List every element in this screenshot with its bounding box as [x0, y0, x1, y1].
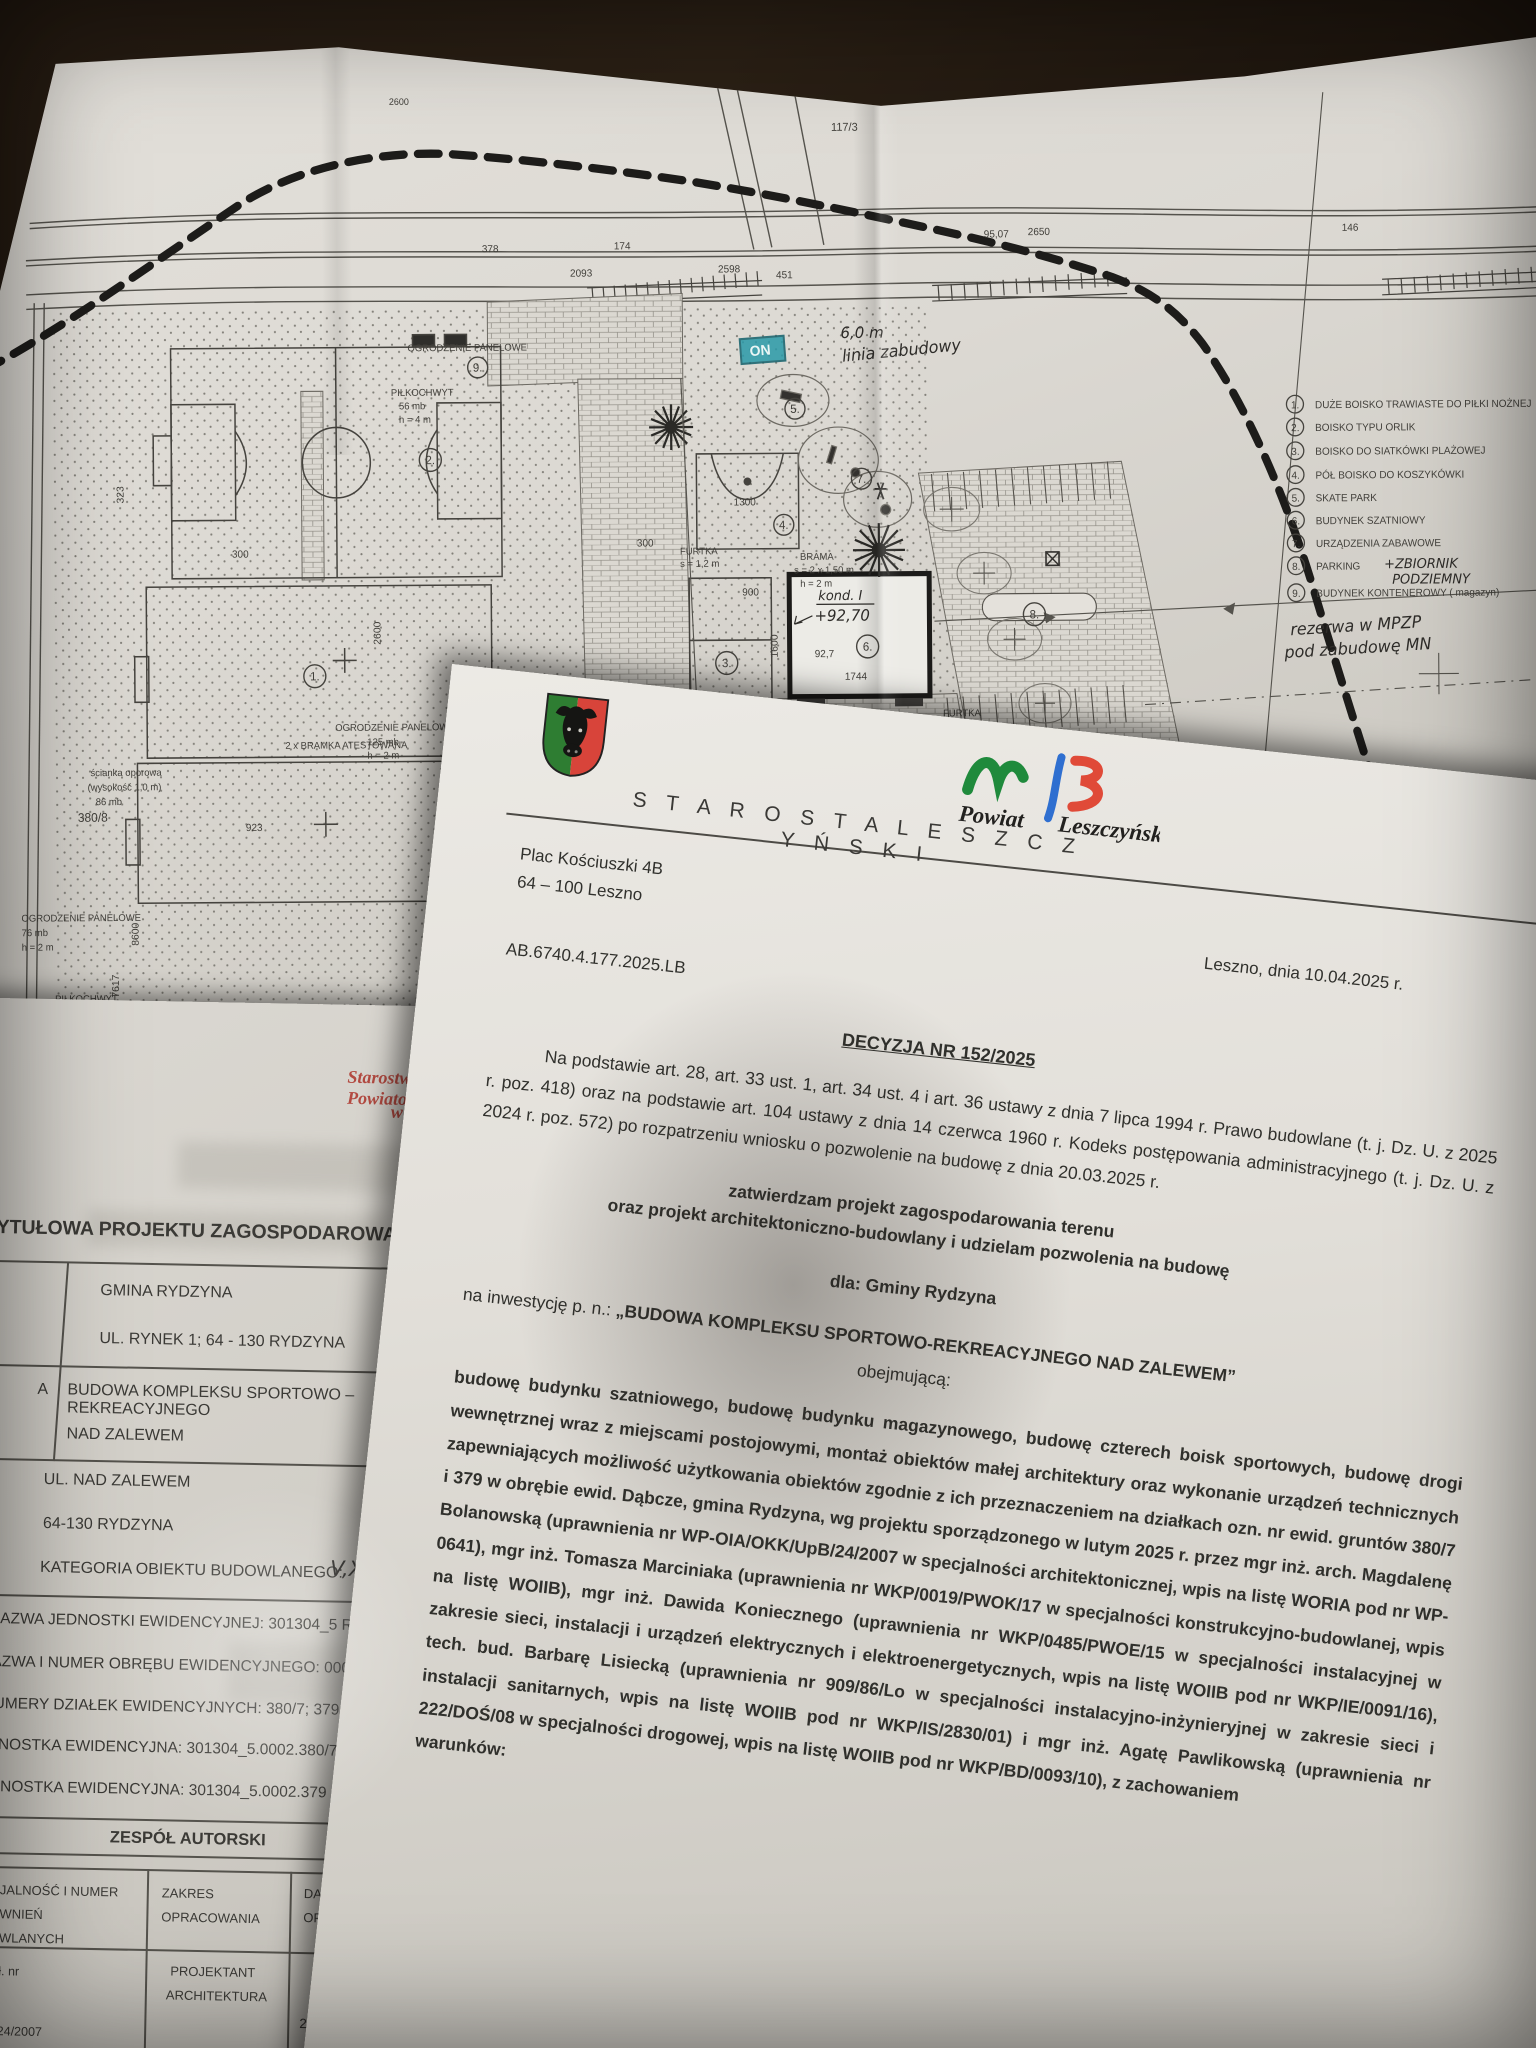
photo-of-documents: 1. 2. 3. 4. 5. 6. 7. 8. 9. 378 174 2093 … — [0, 0, 1536, 2048]
svg-text:6.: 6. — [1292, 516, 1300, 527]
svg-text:378: 378 — [482, 244, 499, 255]
project-name-line2: NAD ZALEWEM — [66, 1425, 184, 1445]
svg-text:2.: 2. — [1291, 423, 1299, 434]
svg-text:174: 174 — [614, 241, 631, 252]
svg-text:+ZBIORNIK: +ZBIORNIK — [1384, 557, 1459, 573]
svg-text:PIŁKOCHWYT: PIŁKOCHWYT — [391, 387, 454, 399]
svg-text:BOISKO TYPU ORLIK: BOISKO TYPU ORLIK — [1315, 422, 1416, 434]
svg-text:1.: 1. — [1291, 400, 1299, 411]
svg-text:h = 2 m: h = 2 m — [22, 942, 54, 953]
svg-text:URZĄDZENIA ZABAWOWE: URZĄDZENIA ZABAWOWE — [1316, 538, 1441, 550]
svg-text:SKATE PARK: SKATE PARK — [1316, 493, 1378, 505]
paper-fold — [320, 39, 353, 455]
investor-name: GMINA RYDZYNA — [100, 1282, 232, 1303]
investor-address: UL. RYNEK 1; 64 - 130 RYDZYNA — [99, 1330, 345, 1353]
letter-body: DECYZJA NR 152/2025 Na podstawie art. 28… — [414, 992, 1504, 1865]
team-col1-header: JALNOŚĆ I NUMER — [0, 1882, 118, 1899]
svg-text:923: 923 — [246, 823, 263, 834]
svg-text:2598: 2598 — [718, 264, 741, 275]
svg-text:BOISKO DO SIATKÓWKI PLAŻOWEJ: BOISKO DO SIATKÓWKI PLAŻOWEJ — [1315, 443, 1485, 457]
svg-text:300: 300 — [232, 549, 249, 560]
team-cell-qualification: ł. nr — [0, 1964, 19, 1978]
svg-text:323: 323 — [116, 486, 127, 504]
sender-address: Plac Kościuszki 4B 64 – 100 Leszno — [516, 840, 665, 911]
category-label: KATEGORIA OBIEKTU BUDOWLANEGO: — [40, 1559, 343, 1583]
svg-text:ścianka oporowa: ścianka oporowa — [90, 768, 162, 780]
svg-text:380/8: 380/8 — [78, 810, 108, 824]
svg-text:5.: 5. — [1292, 493, 1300, 504]
svg-text:8.: 8. — [1030, 608, 1040, 621]
site-city: 64-130 RYDZYNA — [43, 1515, 174, 1536]
svg-text:PÓŁ BOISKO DO KOSZYKÓWKI: PÓŁ BOISKO DO KOSZYKÓWKI — [1315, 467, 1464, 481]
svg-text:92,7: 92,7 — [815, 649, 835, 660]
decision-letter-sheet: Powiat Leszczyński S T A R O S T A L E S… — [290, 664, 1536, 2048]
svg-text:BUDYNEK KONTENEROWY ( magazyn): BUDYNEK KONTENEROWY ( magazyn) — [1316, 587, 1499, 599]
svg-text:300: 300 — [637, 538, 654, 549]
plan-legend: 1.DUŻE BOISKO TRAWIASTE DO PIŁKI NOŻNEJ … — [1286, 394, 1532, 602]
site-street: UL. NAD ZALEWEM — [44, 1471, 191, 1492]
svg-text:OGRODZENIE PANELOWE: OGRODZENIE PANELOWE — [21, 913, 141, 925]
legend-item: 7.URZĄDZENIA ZABAWOWE — [1287, 533, 1441, 552]
svg-text:ON: ON — [749, 342, 771, 360]
svg-text:1300: 1300 — [734, 497, 757, 508]
svg-text:4.: 4. — [779, 519, 789, 532]
legend-item: 8.PARKING — [1288, 557, 1361, 575]
svg-text:2.: 2. — [425, 454, 435, 467]
svg-text:86 mb: 86 mb — [96, 797, 122, 808]
svg-text:s = 1,2 m: s = 1,2 m — [680, 559, 719, 570]
svg-text:h = 2 m: h = 2 m — [367, 750, 399, 761]
svg-text:DUŻE BOISKO TRAWIASTE DO PIŁKI: DUŻE BOISKO TRAWIASTE DO PIŁKI NOŻNEJ — [1315, 397, 1532, 412]
team-header: ZESPÓŁ AUTORSKI — [110, 1828, 266, 1850]
svg-text:95,07: 95,07 — [984, 229, 1009, 240]
svg-text:451: 451 — [776, 270, 793, 281]
row-prefix: A — [37, 1381, 48, 1399]
svg-text:2 x BRAMKA ATESTOWANA: 2 x BRAMKA ATESTOWANA — [285, 740, 408, 752]
case-reference-number: AB.6740.4.177.2025.LB — [505, 939, 687, 978]
svg-text:5.: 5. — [790, 403, 800, 416]
svg-text:s = 2 x 1,50 m: s = 2 x 1,50 m — [794, 565, 854, 577]
legend-item: 2.BOISKO TYPU ORLIK — [1287, 417, 1416, 436]
bleed-through — [177, 1142, 408, 1192]
legend-item: 1.DUŻE BOISKO TRAWIASTE DO PIŁKI NOŻNEJ — [1286, 394, 1531, 413]
evidence-unit-1: JEDNOSTKA EWIDENCYJNA: 301304_5.0002.380… — [0, 1736, 337, 1761]
svg-text:BRAMA: BRAMA — [800, 552, 834, 563]
svg-text:h = 4 m: h = 4 m — [399, 415, 431, 426]
legend-item: 5.SKATE PARK — [1287, 488, 1377, 506]
svg-text:9.: 9. — [1292, 589, 1300, 600]
legend-item: 4.PÓŁ BOISKO DO KOSZYKÓWKI — [1287, 465, 1464, 484]
svg-text:146: 146 — [1342, 223, 1359, 234]
svg-text:(wysokość 1,0 m): (wysokość 1,0 m) — [88, 782, 162, 794]
teal-highlight-mark: ON — [740, 336, 786, 364]
svg-text:2600: 2600 — [373, 621, 384, 644]
team-col2-header: ZAKRES — [162, 1885, 214, 1901]
svg-text:PARKING: PARKING — [1316, 561, 1360, 573]
svg-text:2093: 2093 — [570, 268, 593, 279]
coat-of-arms-bull-icon — [537, 690, 612, 783]
svg-text:900: 900 — [742, 587, 759, 598]
svg-text:56 mb: 56 mb — [399, 401, 425, 412]
svg-text:8.: 8. — [1292, 562, 1300, 573]
svg-text:2600: 2600 — [389, 97, 409, 107]
svg-text:FURTKA: FURTKA — [680, 546, 718, 557]
svg-text:76 mb: 76 mb — [22, 928, 48, 939]
team-cell-scope: PROJEKTANT — [170, 1964, 255, 1981]
svg-text:3.: 3. — [722, 657, 732, 670]
svg-text:1600: 1600 — [770, 634, 781, 657]
svg-text:OGRODZENIE PANELOWE: OGRODZENIE PANELOWE — [335, 722, 455, 734]
svg-text:2650: 2650 — [1028, 227, 1051, 238]
svg-text:OGRODZENIE PANELOWE: OGRODZENIE PANELOWE — [408, 342, 528, 354]
svg-text:1.: 1. — [310, 670, 320, 683]
svg-text:4.: 4. — [1291, 471, 1299, 482]
svg-text:8600: 8600 — [131, 922, 142, 945]
legend-item: 3.BOISKO DO SIATKÓWKI PLAŻOWEJ — [1287, 441, 1486, 460]
svg-text:7.: 7. — [1292, 539, 1300, 550]
svg-text:3.: 3. — [1291, 447, 1299, 458]
evidence-unit-2: JEDNOSTKA EWIDENCYJNA: 301304_5.0002.379 — [0, 1778, 327, 1803]
svg-text:9.: 9. — [473, 361, 483, 374]
letter-date: Leszno, dnia 10.04.2025 r. — [985, 930, 1405, 995]
svg-text:BUDYNEK SZATNIOWY: BUDYNEK SZATNIOWY — [1316, 515, 1426, 527]
svg-text:PODZIEMNY: PODZIEMNY — [1392, 572, 1471, 588]
legend-item: 6.BUDYNEK SZATNIOWY — [1287, 510, 1426, 529]
